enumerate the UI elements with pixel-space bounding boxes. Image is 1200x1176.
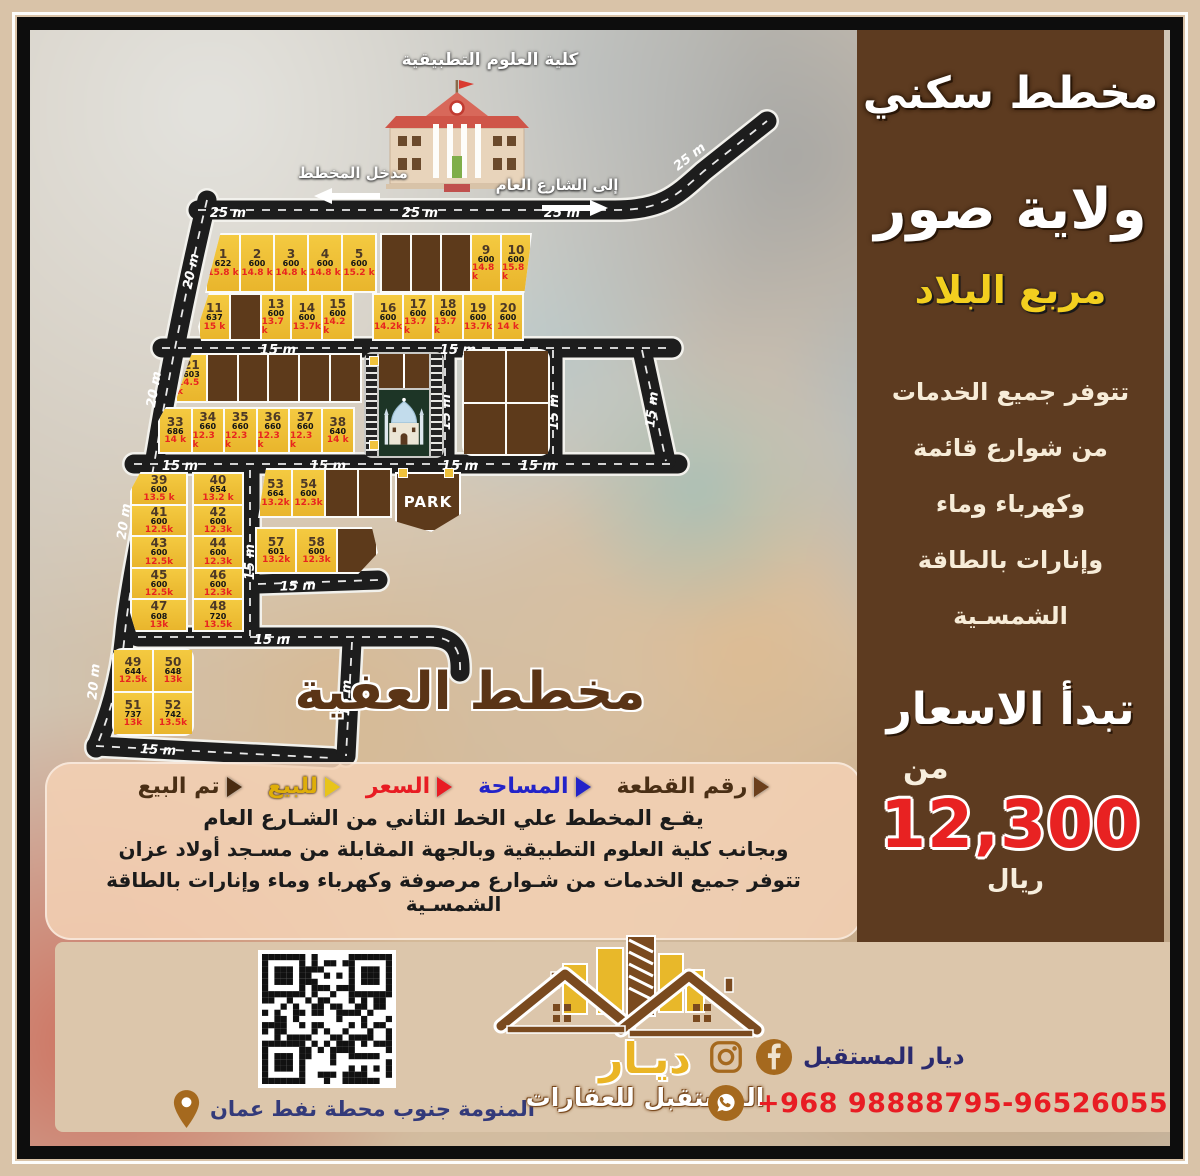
plot-cell-16: 1660014.2k — [374, 295, 402, 339]
plot-pprice: 12.3k — [204, 558, 232, 567]
whatsapp-icon — [707, 1084, 745, 1122]
parking-hatch-right — [431, 354, 442, 456]
plot-pprice: 13k — [124, 719, 143, 728]
description-line-2: وبجانب كلية العلوم التطبيقية وبالجهة الم… — [71, 837, 836, 861]
plot-pprice: 14.8 k — [275, 269, 306, 278]
plot-pprice: 14.8 k — [472, 264, 500, 282]
plot-block-39-47: 3960013.5 k4160012.5k4360012.5k4560012.5… — [130, 472, 188, 632]
plot-cell-57: 5760113.2k — [257, 529, 295, 572]
plot-cell-49: 4964412.5k — [114, 650, 152, 691]
plot-block-11-15: 1163715 k1360013.7 k1460013.7k1560014.2 … — [198, 293, 354, 341]
plot-block-33-38: 3368614 k3466012.3 k3566012.3 k3666012.3… — [158, 407, 355, 454]
sidebar-title-residential-plan: مخطط سكني — [857, 68, 1164, 119]
legend-arrow-icon — [576, 777, 591, 797]
park-label: PARK — [404, 493, 452, 511]
plot-block-sold-east — [462, 349, 550, 456]
plot-cell-17: 1760013.7 k — [404, 295, 432, 339]
plot-pprice: 15.8 k — [207, 269, 238, 278]
plot-pprice: 12.5k — [119, 676, 147, 685]
plot-cell-45: 4560012.5k — [132, 569, 186, 599]
plot-cell-47: 4760813k — [132, 600, 186, 630]
service-line: وإنارات بالطاقة الشمسـية — [857, 532, 1164, 644]
plot-pprice: 13.7 k — [404, 318, 432, 336]
poster-content: 25 m25 m25 m25 m20 m20 m20 m20 m15 m15 m… — [30, 30, 1170, 1146]
prices-start-title: تبدأ الاسعار — [857, 684, 1164, 735]
plot-cell-sold — [464, 404, 505, 455]
plot-cell-14: 1460013.7k — [292, 295, 321, 339]
plot-pprice: 14 k — [327, 436, 349, 445]
road-dimension-label: 15 m — [280, 578, 317, 594]
phone-row: +968 98888795-96526055 — [707, 1084, 1168, 1122]
plot-block-1-5: 162215.8 k260014.8 k360014.8 k460014.8 k… — [205, 233, 377, 293]
road-dimension-label: 25 m — [402, 206, 438, 221]
mosque-column — [379, 354, 429, 456]
plot-pprice: 13.5k — [204, 621, 232, 630]
plot-pprice: 13.2 k — [202, 494, 233, 503]
phone-number: +968 98888795-96526055 — [757, 1088, 1168, 1119]
plot-cell-sold — [300, 355, 329, 401]
service-line: وكهرباء وماء — [857, 476, 1164, 532]
plot-pprice: 14.8 k — [309, 269, 340, 278]
plot-pprice: 14 k — [497, 323, 519, 332]
plot-cell-34: 3466012.3 k — [193, 409, 224, 452]
plot-pprice: 15 k — [204, 323, 226, 332]
plot-cell-2: 260014.8 k — [241, 235, 273, 291]
plot-block-57-59: 5760113.2k5860012.3k — [255, 527, 378, 574]
plot-cell-40: 4065413.2 k — [194, 474, 242, 504]
plan-title: مخطط العفية — [270, 662, 670, 722]
plot-pno: 41 — [151, 506, 168, 518]
college-label: كلية العلوم التطبيقية — [330, 50, 650, 70]
plot-pprice: 12.5k — [145, 558, 173, 567]
road-dimension-label: 25 m — [210, 206, 246, 221]
plot-cell-19: 1960013.7k — [464, 295, 492, 339]
plot-cell-54: 5460012.3k — [293, 470, 324, 516]
road-dimension-label: 15 m — [254, 633, 290, 648]
plot-cell-53: 5366413.2k — [260, 470, 291, 516]
plot-pno: 47 — [151, 600, 168, 612]
from-label: من — [857, 751, 1164, 786]
plot-cell-18: 1860013.7 k — [434, 295, 462, 339]
plot-pprice: 12.3 k — [258, 432, 289, 450]
social-row: ديار المستقبل — [707, 1038, 965, 1076]
plot-pprice: 12.5k — [145, 589, 173, 598]
info-sidebar: مخطط سكني ولاية صور مربع البلاد تتوفر جم… — [857, 30, 1164, 985]
plot-pprice: 14.8 k — [241, 269, 272, 278]
service-line: من شوارع قائمة — [857, 420, 1164, 476]
plot-cell-13: 1360013.7 k — [262, 295, 291, 339]
legend-arrow-icon — [325, 777, 340, 797]
plot-pprice: 12.5k — [145, 526, 173, 535]
legend-item-price: السعر — [366, 774, 452, 799]
legend-label: تم البيع — [138, 774, 220, 799]
plot-cell-sold — [331, 355, 360, 401]
plot-cell-35: 3566012.3 k — [225, 409, 256, 452]
footer-panel: المنومة جنوب محطة نفط عمان — [55, 942, 1170, 1132]
plot-cell-9: 960014.8 k — [472, 235, 500, 291]
plot-pprice: 15.8 k — [502, 264, 530, 282]
plot-block-40-48: 4065413.2 k4260012.3k4460012.3k4660012.3… — [192, 472, 244, 632]
instagram-icon — [707, 1038, 745, 1076]
plot-pno: 48 — [210, 600, 227, 612]
plot-cell-52: 5274213.5k — [154, 693, 192, 734]
plot-cell-3: 360014.8 k — [275, 235, 307, 291]
plot-cell-37: 3766012.3 k — [290, 409, 321, 452]
plot-cell-sold — [442, 235, 470, 291]
plot-cell-41: 4160012.5k — [132, 506, 186, 536]
plot-pprice: 14.2k — [374, 323, 402, 332]
road-dimension-label: 15 m — [520, 459, 556, 474]
plot-pprice: 14 k — [164, 436, 186, 445]
corner-marker — [398, 468, 408, 478]
plot-pprice: 13.5k — [159, 719, 187, 728]
plot-cell-15: 1560014.2 k — [323, 295, 352, 339]
facebook-icon — [755, 1038, 793, 1076]
sold-cells-above-mosque — [379, 354, 429, 388]
legend-item-sold: تم البيع — [138, 774, 242, 799]
sidebar-title-murabba-albilad: مربع البلاد — [857, 268, 1164, 312]
plot-block-49-52: 4964412.5k5064813k5173713k5274213.5k — [112, 648, 194, 736]
legend-panel: رقم القطعة المساحة السعر للبيع تم البيع — [45, 762, 862, 940]
sidebar-services: تتوفر جميع الخدمات من شوارع قائمة وكهربا… — [857, 364, 1164, 644]
qr-code — [258, 950, 396, 1088]
plot-pprice: 13.5 k — [143, 494, 174, 503]
currency-label: ريال — [857, 865, 1164, 895]
plot-cell-20: 2060014 k — [494, 295, 522, 339]
plot-cell-5: 560015.2 k — [343, 235, 375, 291]
plot-cell-43: 4360012.5k — [132, 537, 186, 567]
plot-cell-sold — [382, 235, 410, 291]
plot-block-21-26: 2160314.5 k — [175, 353, 362, 403]
plot-pprice: 13k — [150, 621, 169, 630]
legend-label: المساحة — [478, 774, 568, 799]
plot-pprice: 12.3k — [204, 526, 232, 535]
plot-cell-sold — [269, 355, 298, 401]
street-right-arrow-icon — [542, 200, 608, 216]
location-pin-icon — [173, 1090, 200, 1128]
agency-logo — [493, 934, 793, 1046]
plot-pno: 42 — [210, 506, 227, 518]
corner-marker — [369, 440, 379, 450]
plot-cell-36: 3666012.3 k — [258, 409, 289, 452]
plot-pprice: 15.2 k — [343, 269, 374, 278]
plot-cell-46: 4660012.3k — [194, 569, 242, 599]
corner-marker — [444, 468, 454, 478]
legend-row: رقم القطعة المساحة السعر للبيع تم البيع — [45, 774, 862, 799]
legend-arrow-icon — [754, 777, 769, 797]
plot-cell-sold — [464, 351, 505, 402]
plot-pprice: 13.7k — [464, 323, 492, 332]
plot-pprice: 14.2 k — [323, 318, 352, 336]
plot-cell-38: 3864014 k — [323, 409, 354, 452]
plot-pprice: 13.7k — [293, 323, 321, 332]
plan-entrance-label: مدخل المخطط — [288, 164, 418, 182]
plot-cell-48: 4872013.5k — [194, 600, 242, 630]
road-dimension-label: 15 m — [140, 742, 177, 759]
plot-cell-4: 460014.8 k — [309, 235, 341, 291]
plot-pprice: 12.3k — [204, 589, 232, 598]
brand-name-text: ديار المستقبل — [803, 1044, 965, 1070]
plot-block-6-10: 960014.8 k1060015.8 k — [380, 233, 532, 293]
legend-label: السعر — [366, 774, 430, 799]
real-estate-poster: 25 m25 m25 m25 m20 m20 m20 m20 m15 m15 m… — [0, 0, 1200, 1176]
plot-cell-sold — [326, 470, 357, 516]
plot-cell-51: 5173713k — [114, 693, 152, 734]
plot-cell-sold — [208, 355, 237, 401]
plot-block-53-56: 5366413.2k5460012.3k — [258, 468, 392, 518]
plot-cell-50: 5064813k — [154, 650, 192, 691]
mosque-icon — [379, 390, 429, 456]
plot-cell-sold — [359, 470, 390, 516]
description-line-3: تتوفر جميع الخدمات من شـوارع مرصوفة وكهر… — [71, 868, 836, 916]
description-line-1: يقـع المخطط علي الخط الثاني من الشـارع ا… — [71, 806, 836, 830]
plot-pprice: 12.3 k — [193, 432, 224, 450]
legend-item-for-sale: للبيع — [268, 774, 340, 799]
plot-cell-sold — [507, 404, 548, 455]
plot-pprice: 13.2k — [262, 556, 290, 565]
plot-cell-33: 3368614 k — [160, 409, 191, 452]
plot-pprice: 12.3k — [294, 499, 322, 508]
sidebar-title-wilayat-sur: ولاية صور — [857, 177, 1164, 242]
plot-block-16-20: 1660014.2k1760013.7 k1860013.7 k1960013.… — [372, 293, 524, 341]
plot-cell-44: 4460012.3k — [194, 537, 242, 567]
plot-pprice: 13.2k — [261, 499, 289, 508]
legend-item-area: المساحة — [478, 774, 590, 799]
legend-label: للبيع — [268, 774, 318, 799]
service-line: تتوفر جميع الخدمات — [857, 364, 1164, 420]
plot-cell-42: 4260012.3k — [194, 506, 242, 536]
plot-pprice: 12.3 k — [290, 432, 321, 450]
road-dimension-label: 20 m — [85, 663, 103, 700]
plot-cell-58: 5860012.3k — [297, 529, 335, 572]
plot-pprice: 13.7 k — [434, 318, 462, 336]
plot-cell-sold — [239, 355, 268, 401]
plot-pprice: 12.3k — [302, 556, 330, 565]
legend-arrow-icon — [227, 777, 242, 797]
plot-pprice: 12.3 k — [225, 432, 256, 450]
plot-cell-sold — [507, 351, 548, 402]
plot-pprice: 13k — [164, 676, 183, 685]
entrance-left-arrow-icon — [314, 188, 380, 204]
plot-cell-sold — [412, 235, 440, 291]
legend-arrow-icon — [437, 777, 452, 797]
legend-label: رقم القطعة — [617, 774, 748, 799]
starting-price: 12,300 — [857, 786, 1164, 863]
legend-item-plot-number: رقم القطعة — [617, 774, 770, 799]
plot-cell-39: 3960013.5 k — [132, 474, 186, 504]
plot-cell-sold — [231, 295, 260, 339]
plot-pprice: 13.7 k — [262, 318, 291, 336]
corner-marker — [369, 356, 379, 366]
to-main-street-label: إلى الشارع العام — [482, 176, 632, 194]
